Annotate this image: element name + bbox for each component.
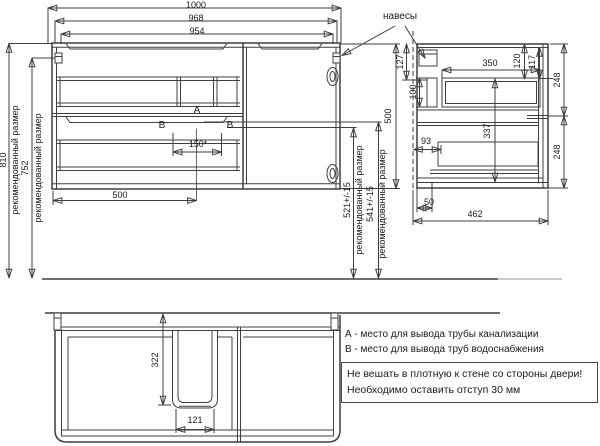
dim-side-337: 337 bbox=[481, 116, 493, 146]
legend-drain: А - место для вывода трубы канализации bbox=[345, 329, 538, 340]
hanger-bracket-left bbox=[55, 53, 62, 63]
dim-holes-150: 150* bbox=[183, 139, 213, 150]
dim-side-50: 50 bbox=[420, 197, 438, 208]
dim-side-350: 350 bbox=[475, 58, 505, 69]
dim-side-248-bottom: 248 bbox=[551, 137, 563, 167]
dim-height-521: 521+/-15 bbox=[341, 172, 353, 228]
dim-top-mid: 968 bbox=[182, 13, 210, 24]
dim-side-120: 120 bbox=[511, 46, 523, 76]
hanger-bracket-right bbox=[333, 53, 340, 63]
dim-side-100: 100 bbox=[407, 77, 419, 107]
plan-hanger-right bbox=[331, 313, 338, 330]
dim-side-117: 117 bbox=[526, 47, 538, 77]
plan-pipe-recess bbox=[173, 331, 218, 408]
warning-note-line1: Не вешать в плотную к стене со стороны д… bbox=[347, 366, 592, 382]
dim-plan-121: 121 bbox=[181, 415, 209, 426]
dim-plan-322: 322 bbox=[149, 345, 161, 375]
furniture-dimension-drawing: 1000 968 954 810 рекомендованный размер … bbox=[0, 0, 600, 446]
dim-side-248-top: 248 bbox=[551, 65, 563, 95]
side-hanger-strip bbox=[427, 78, 437, 107]
floor-hatch bbox=[42, 279, 562, 290]
recommended-size-label: рекомендованный размер bbox=[32, 103, 44, 233]
dim-top-inner: 954 bbox=[183, 26, 211, 37]
warning-note-line2: Необходимо оставить отступ 30 мм bbox=[347, 382, 592, 398]
dim-height-752: 752 bbox=[19, 153, 31, 183]
dim-side-127: 127 bbox=[394, 47, 406, 77]
point-b-label-right: В bbox=[225, 120, 235, 131]
wall-hatch bbox=[45, 303, 500, 313]
dim-height-810: 810 bbox=[0, 145, 9, 175]
dim-top-overall: 1000 bbox=[180, 0, 212, 11]
warning-note: Не вешать в плотную к стене со стороны д… bbox=[341, 362, 598, 403]
legend-water: В - место для вывода труб водоснабжения bbox=[345, 344, 544, 355]
dim-side-462: 462 bbox=[459, 209, 491, 220]
plan-hanger-left bbox=[54, 313, 61, 330]
point-b-label-left: В bbox=[157, 120, 167, 131]
dim-front-bottom-500: 500 bbox=[104, 190, 136, 201]
water-outlet-marker-left bbox=[168, 123, 178, 133]
hangers-callout: навесы bbox=[383, 11, 417, 22]
dim-side-93: 93 bbox=[417, 136, 435, 147]
dim-height-541: 541+/-15 bbox=[364, 176, 376, 232]
recommended-size-label: рекомендованный размер bbox=[376, 139, 388, 269]
point-a-label: А bbox=[191, 105, 203, 116]
dim-side-height-500: 500 bbox=[382, 101, 394, 131]
